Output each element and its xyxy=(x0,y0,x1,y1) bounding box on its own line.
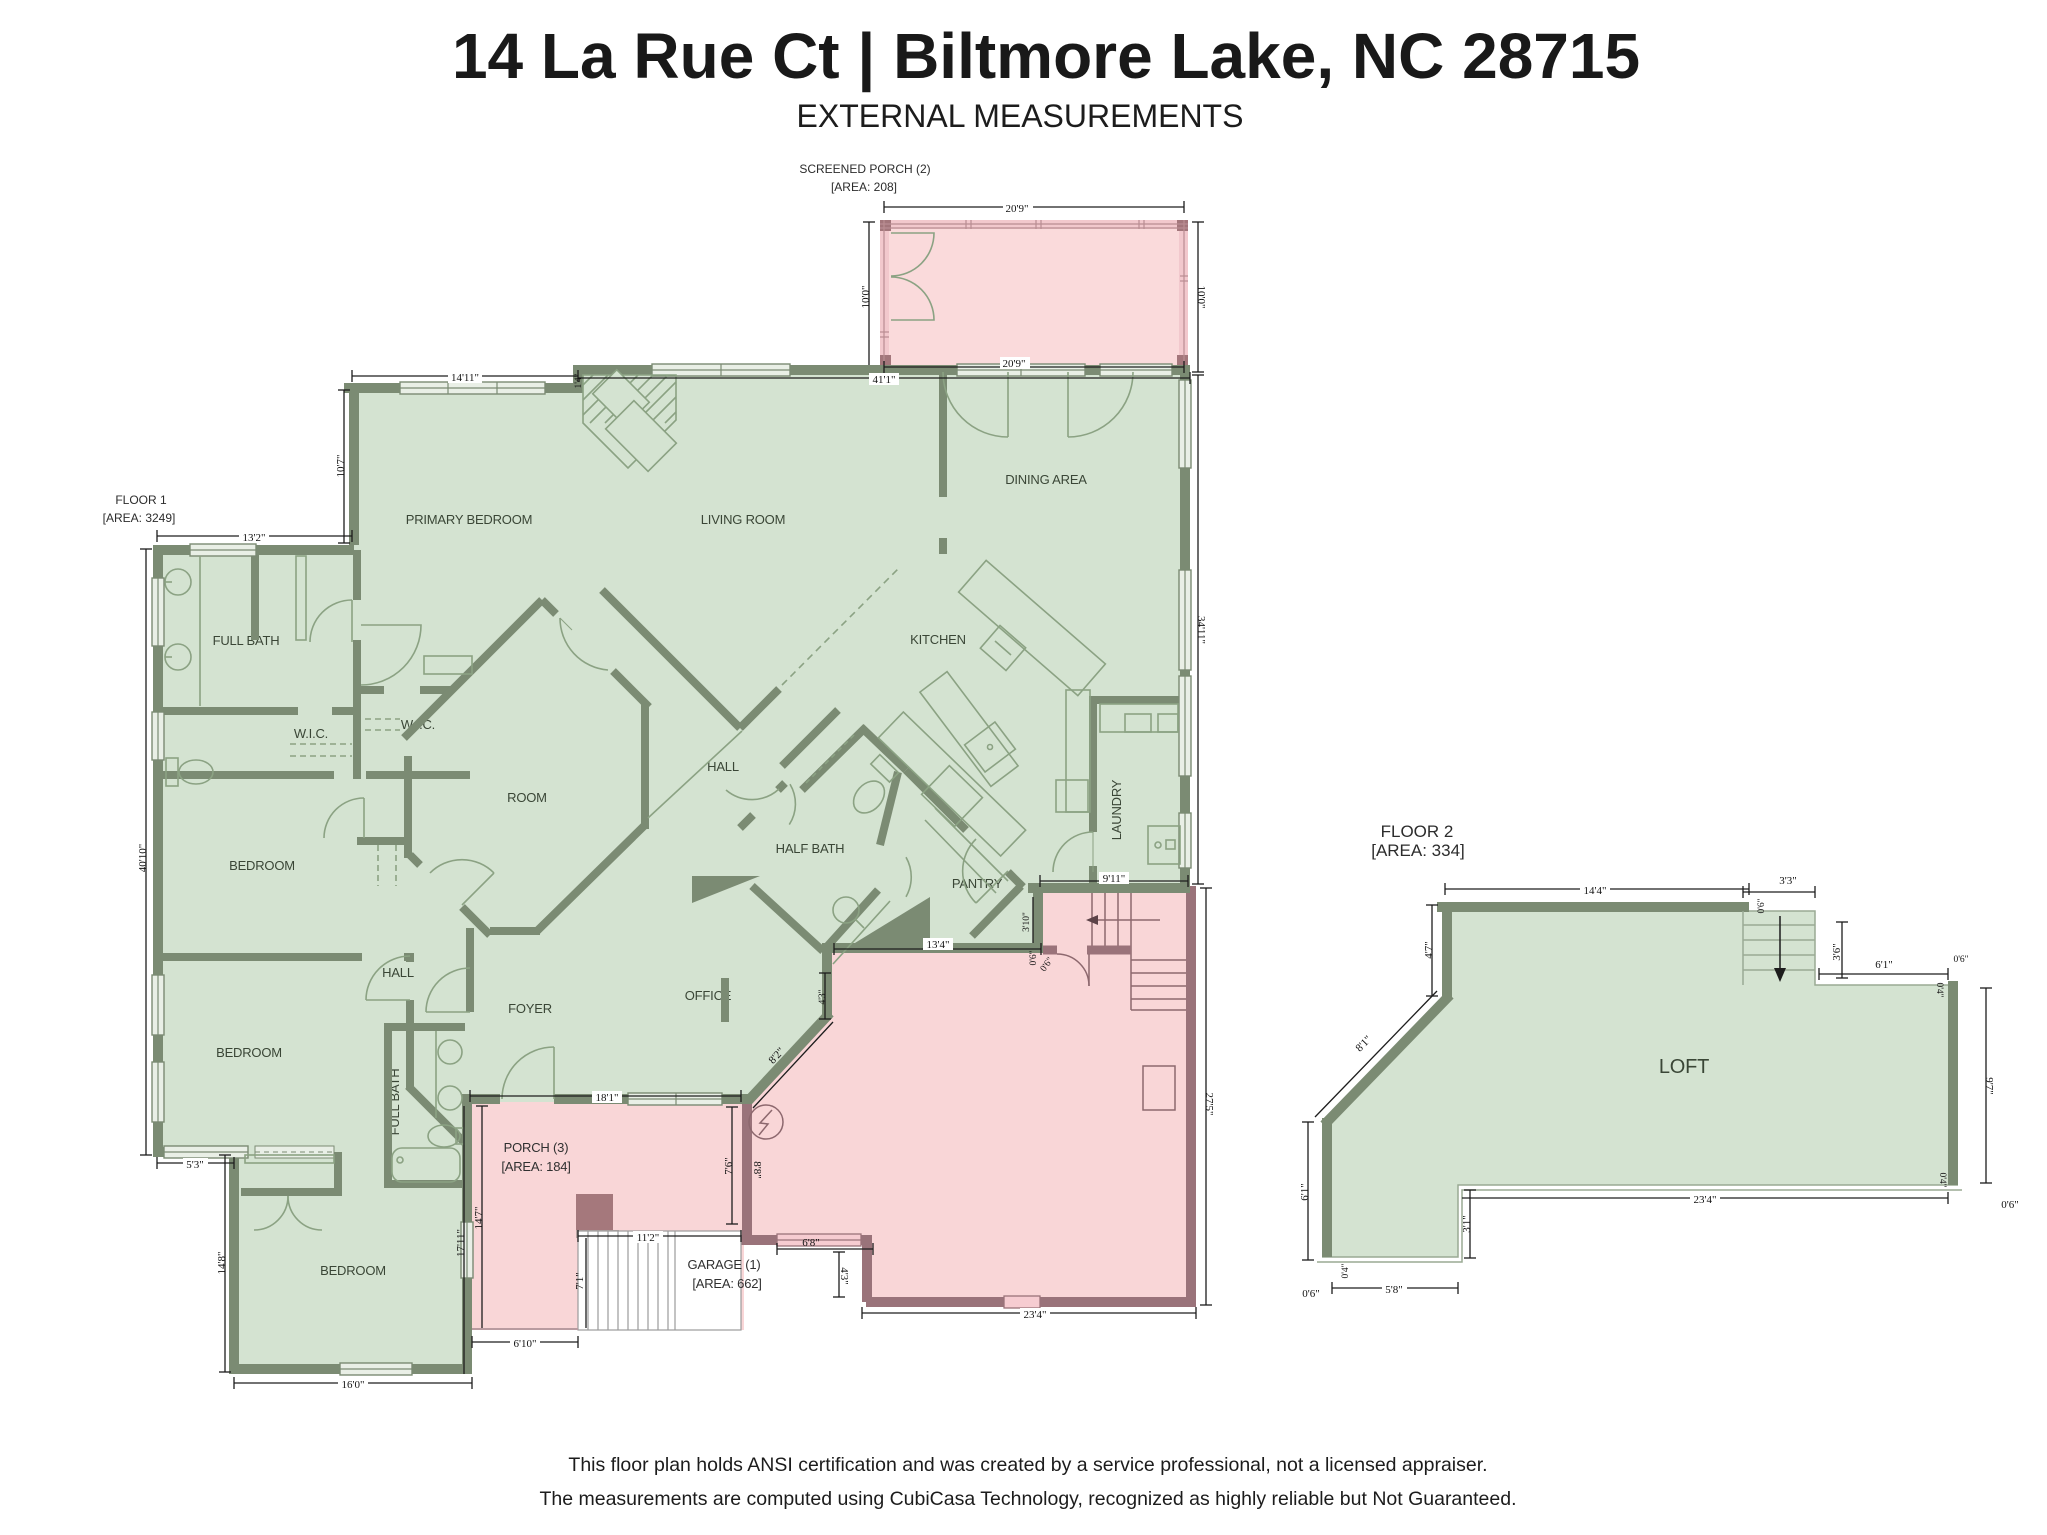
svg-text:6'10": 6'10" xyxy=(514,1338,537,1350)
svg-text:10'0": 10'0" xyxy=(1195,286,1207,309)
svg-text:23'4": 23'4" xyxy=(1024,1309,1047,1321)
svg-text:0'6": 0'6" xyxy=(2001,1199,2018,1211)
svg-text:BEDROOM: BEDROOM xyxy=(229,858,295,873)
svg-text:LOFT: LOFT xyxy=(1659,1056,1709,1078)
svg-text:6'1": 6'1" xyxy=(1299,1183,1311,1200)
svg-text:FULL BATH: FULL BATH xyxy=(213,633,280,648)
svg-text:0'4": 0'4" xyxy=(1341,1263,1351,1278)
svg-text:13'4": 13'4" xyxy=(927,939,950,951)
svg-text:11'2": 11'2" xyxy=(637,1232,660,1244)
svg-text:3'6": 3'6" xyxy=(1831,943,1843,960)
svg-text:9'7": 9'7" xyxy=(1983,1077,1995,1094)
svg-text:7'1": 7'1" xyxy=(574,1272,586,1289)
svg-text:14'4": 14'4" xyxy=(1584,885,1607,897)
svg-text:ROOM: ROOM xyxy=(507,790,547,805)
svg-text:W.I.C.: W.I.C. xyxy=(294,726,328,741)
svg-text:40'10": 40'10" xyxy=(137,844,149,872)
svg-text:10'7": 10'7" xyxy=(335,455,347,478)
svg-text:20'9": 20'9" xyxy=(1006,203,1029,215)
svg-text:KITCHEN: KITCHEN xyxy=(910,632,966,647)
svg-text:GARAGE (1): GARAGE (1) xyxy=(687,1257,760,1272)
svg-text:34'11": 34'11" xyxy=(1195,616,1207,644)
svg-text:9'11": 9'11" xyxy=(1103,873,1126,885)
svg-text:[AREA: 208]: [AREA: 208] xyxy=(831,180,897,194)
svg-text:4'3": 4'3" xyxy=(838,1267,850,1284)
svg-text:41'1": 41'1" xyxy=(873,374,896,386)
svg-text:14'7": 14'7" xyxy=(473,1207,485,1230)
svg-text:10'0": 10'0" xyxy=(860,286,872,309)
svg-text:EXTERNAL MEASUREMENTS: EXTERNAL MEASUREMENTS xyxy=(797,98,1244,134)
svg-text:HALL: HALL xyxy=(707,759,739,774)
svg-text:14'11": 14'11" xyxy=(451,372,479,384)
svg-text:SCREENED PORCH (2): SCREENED PORCH (2) xyxy=(799,162,930,176)
svg-text:LIVING ROOM: LIVING ROOM xyxy=(701,512,785,527)
svg-text:0'6": 0'6" xyxy=(1953,955,1968,965)
svg-text:[AREA: 662]: [AREA: 662] xyxy=(692,1276,761,1291)
svg-text:PORCH (3): PORCH (3) xyxy=(504,1140,569,1155)
svg-text:BEDROOM: BEDROOM xyxy=(320,1263,386,1278)
svg-text:[AREA: 184]: [AREA: 184] xyxy=(501,1159,570,1174)
svg-text:5'8": 5'8" xyxy=(1385,1284,1402,1296)
svg-text:3'10": 3'10" xyxy=(1022,912,1032,932)
svg-text:8'8": 8'8" xyxy=(751,1161,763,1178)
svg-text:7'6": 7'6" xyxy=(723,1157,735,1174)
svg-text:3'3": 3'3" xyxy=(1779,875,1796,887)
svg-text:6'1": 6'1" xyxy=(1875,959,1892,971)
svg-text:0'4": 0'4" xyxy=(1937,1172,1947,1187)
svg-text:5'3": 5'3" xyxy=(186,1159,203,1171)
svg-text:16'0": 16'0" xyxy=(342,1379,365,1391)
svg-text:The measurements are computed: The measurements are computed using Cubi… xyxy=(539,1488,1516,1510)
svg-text:PRIMARY BEDROOM: PRIMARY BEDROOM xyxy=(406,512,533,527)
svg-text:FOYER: FOYER xyxy=(508,1001,552,1016)
svg-text:4'3": 4'3" xyxy=(818,989,828,1004)
svg-text:6'8": 6'8" xyxy=(802,1237,819,1249)
svg-text:14'8": 14'8" xyxy=(216,1252,228,1275)
svg-text:This floor plan holds ANSI cer: This floor plan holds ANSI certification… xyxy=(568,1454,1487,1476)
svg-text:18'1": 18'1" xyxy=(596,1092,619,1104)
svg-text:[AREA: 3249]: [AREA: 3249] xyxy=(103,511,176,525)
svg-text:17'11": 17'11" xyxy=(455,1229,467,1257)
svg-text:HALL: HALL xyxy=(382,965,414,980)
svg-text:1'4": 1'4" xyxy=(574,373,584,388)
svg-text:FLOOR 2: FLOOR 2 xyxy=(1381,822,1454,841)
svg-text:0'6": 0'6" xyxy=(1302,1288,1319,1300)
svg-text:LAUNDRY: LAUNDRY xyxy=(1109,779,1124,840)
svg-text:0'4": 0'4" xyxy=(1934,982,1944,997)
svg-text:0'6": 0'6" xyxy=(1757,898,1767,913)
svg-text:FLOOR 1: FLOOR 1 xyxy=(115,493,167,507)
svg-text:13'2": 13'2" xyxy=(243,532,266,544)
svg-text:14 La Rue Ct | Biltmore Lake,: 14 La Rue Ct | Biltmore Lake, NC 28715 xyxy=(452,20,1640,93)
svg-text:HALF BATH: HALF BATH xyxy=(776,841,845,856)
svg-text:0'6": 0'6" xyxy=(1029,950,1039,965)
svg-text:DINING AREA: DINING AREA xyxy=(1005,472,1087,487)
svg-text:[AREA: 334]: [AREA: 334] xyxy=(1371,841,1465,860)
svg-text:27'5": 27'5" xyxy=(1203,1093,1215,1116)
svg-text:20'9": 20'9" xyxy=(1003,358,1026,370)
svg-text:3'1": 3'1" xyxy=(1461,1215,1473,1232)
svg-text:23'4": 23'4" xyxy=(1694,1194,1717,1206)
svg-text:4'7": 4'7" xyxy=(1423,941,1435,958)
svg-text:BEDROOM: BEDROOM xyxy=(216,1045,282,1060)
